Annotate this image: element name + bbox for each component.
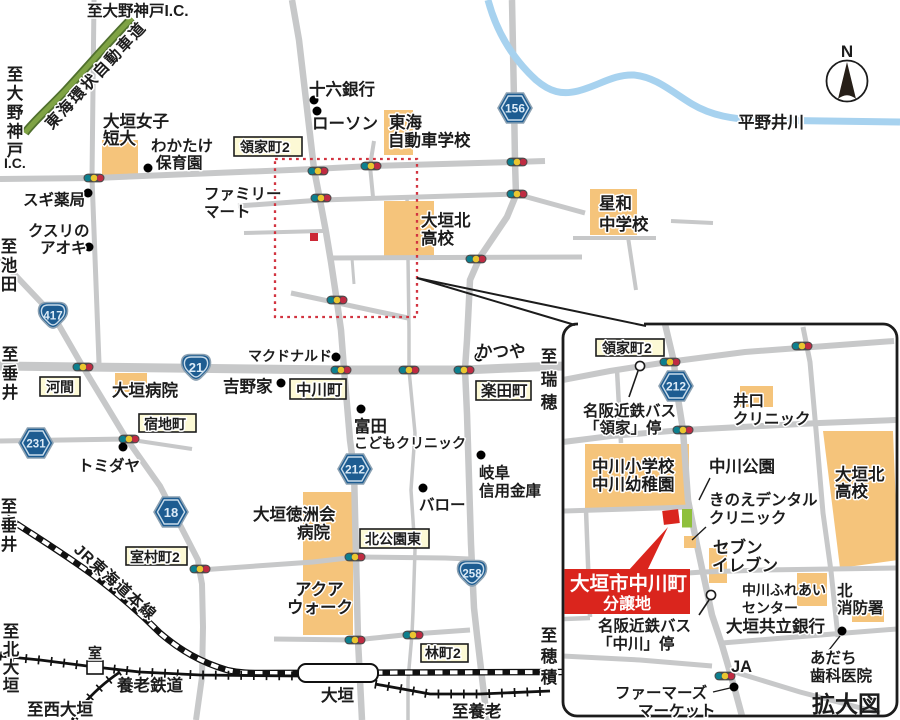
svg-text:養老鉄道: 養老鉄道 (116, 675, 184, 695)
svg-text:歯科医院: 歯科医院 (810, 666, 873, 685)
svg-text:マート: マート (204, 204, 251, 221)
svg-text:大垣北: 大垣北 (835, 464, 885, 484)
svg-text:河間: 河間 (46, 379, 74, 395)
svg-text:「中川」停: 「中川」停 (597, 634, 675, 653)
svg-text:ファミリー: ファミリー (204, 186, 282, 203)
svg-text:スギ薬局: スギ薬局 (23, 190, 85, 209)
svg-text:林町2: 林町2 (425, 645, 461, 661)
svg-text:至瑞穂: 至瑞穂 (541, 347, 558, 412)
svg-text:大垣: 大垣 (321, 685, 355, 705)
svg-text:わかたけ: わかたけ (151, 137, 213, 155)
svg-text:北: 北 (837, 582, 853, 600)
svg-text:トミダヤ: トミダヤ (78, 456, 140, 475)
svg-text:大垣女子: 大垣女子 (103, 111, 170, 131)
svg-text:井口: 井口 (733, 391, 764, 410)
svg-text:きのえデンタル: きのえデンタル (709, 490, 818, 509)
svg-text:大垣市中川町: 大垣市中川町 (570, 572, 688, 595)
svg-text:I.C.: I.C. (4, 155, 26, 171)
svg-text:信用金庫: 信用金庫 (479, 481, 542, 500)
svg-text:自動車学校: 自動車学校 (388, 130, 471, 150)
svg-text:領家町2: 領家町2 (602, 340, 652, 356)
svg-text:大垣徳洲会: 大垣徳洲会 (253, 504, 336, 524)
svg-text:ウォーク: ウォーク (287, 598, 353, 617)
svg-text:拡大図: 拡大図 (812, 691, 881, 717)
svg-text:大垣病院: 大垣病院 (112, 380, 179, 400)
svg-text:領家町2: 領家町2 (240, 139, 290, 155)
svg-text:至養老: 至養老 (452, 701, 502, 720)
svg-text:高校: 高校 (421, 228, 455, 248)
svg-text:ローソン: ローソン (312, 115, 378, 133)
svg-text:星和: 星和 (599, 194, 632, 213)
svg-text:高校: 高校 (835, 481, 869, 501)
svg-text:至垂井: 至垂井 (1, 497, 18, 554)
svg-text:JA: JA (731, 658, 752, 676)
svg-text:212: 212 (345, 463, 365, 477)
svg-text:短大: 短大 (103, 128, 137, 148)
svg-text:ファーマーズ: ファーマーズ (615, 683, 708, 702)
svg-text:231: 231 (26, 439, 46, 451)
svg-text:中川幼稚園: 中川幼稚園 (592, 474, 675, 494)
svg-text:名阪近鉄バス: 名阪近鉄バス (598, 616, 691, 635)
svg-text:アオキ: アオキ (40, 239, 87, 257)
svg-text:N: N (841, 42, 853, 61)
svg-text:クリニック: クリニック (709, 509, 787, 527)
svg-text:中学校: 中学校 (599, 214, 649, 234)
svg-text:保育園: 保育園 (155, 153, 203, 172)
svg-text:大垣共立銀行: 大垣共立銀行 (726, 616, 826, 636)
svg-text:バロー: バロー (419, 496, 466, 514)
svg-text:マーケット: マーケット (638, 702, 716, 720)
svg-text:北公園東: 北公園東 (365, 531, 421, 547)
svg-text:センター: センター (742, 600, 798, 616)
svg-text:吉野家: 吉野家 (223, 376, 273, 396)
svg-text:中川小学校: 中川小学校 (592, 456, 675, 476)
svg-text:セブン: セブン (713, 537, 763, 557)
svg-text:至西大垣: 至西大垣 (27, 699, 94, 719)
svg-text:マクドナルド: マクドナルド (248, 348, 332, 364)
svg-text:宿地町: 宿地町 (144, 416, 186, 432)
svg-text:岐阜: 岐阜 (479, 463, 510, 482)
svg-text:イレブン: イレブン (712, 555, 778, 575)
svg-text:至北大垣: 至北大垣 (3, 622, 20, 695)
svg-text:アクア: アクア (295, 580, 344, 599)
svg-text:室村町2: 室村町2 (130, 549, 180, 565)
svg-text:かつや: かつや (476, 342, 526, 361)
svg-text:至大野神戸: 至大野神戸 (7, 65, 24, 160)
svg-text:クリニック: クリニック (733, 410, 811, 428)
svg-text:中川ふれあい: 中川ふれあい (742, 582, 826, 598)
svg-text:東海: 東海 (389, 112, 423, 132)
svg-text:至池田: 至池田 (1, 237, 18, 294)
svg-text:平野井川: 平野井川 (738, 112, 804, 132)
svg-text:病院: 病院 (297, 522, 331, 542)
svg-text:室: 室 (88, 645, 102, 661)
svg-text:中川町: 中川町 (296, 380, 343, 399)
svg-text:分譲地: 分譲地 (603, 594, 651, 613)
svg-text:十六銀行: 十六銀行 (309, 79, 376, 99)
svg-text:「領家」停: 「領家」停 (584, 418, 662, 437)
svg-text:クスリの: クスリの (28, 222, 90, 240)
svg-text:18: 18 (164, 505, 178, 520)
svg-text:258: 258 (462, 569, 482, 581)
svg-text:212: 212 (666, 380, 686, 394)
svg-text:至垂井: 至垂井 (2, 345, 19, 402)
svg-text:消防署: 消防署 (837, 598, 884, 617)
svg-text:417: 417 (43, 311, 62, 323)
svg-text:あだち: あだち (810, 649, 857, 667)
svg-text:こどもクリニック: こどもクリニック (354, 435, 466, 451)
svg-text:至大野神戸I.C.: 至大野神戸I.C. (87, 1, 189, 20)
svg-text:至穂積: 至穂積 (540, 626, 558, 687)
svg-text:大垣北: 大垣北 (421, 210, 471, 230)
svg-text:中川公園: 中川公園 (709, 456, 775, 476)
svg-text:156: 156 (505, 102, 525, 116)
svg-text:21: 21 (189, 360, 203, 375)
svg-text:富田: 富田 (354, 416, 387, 436)
svg-text:楽田町: 楽田町 (481, 381, 528, 400)
svg-text:名阪近鉄バス: 名阪近鉄バス (583, 401, 676, 420)
